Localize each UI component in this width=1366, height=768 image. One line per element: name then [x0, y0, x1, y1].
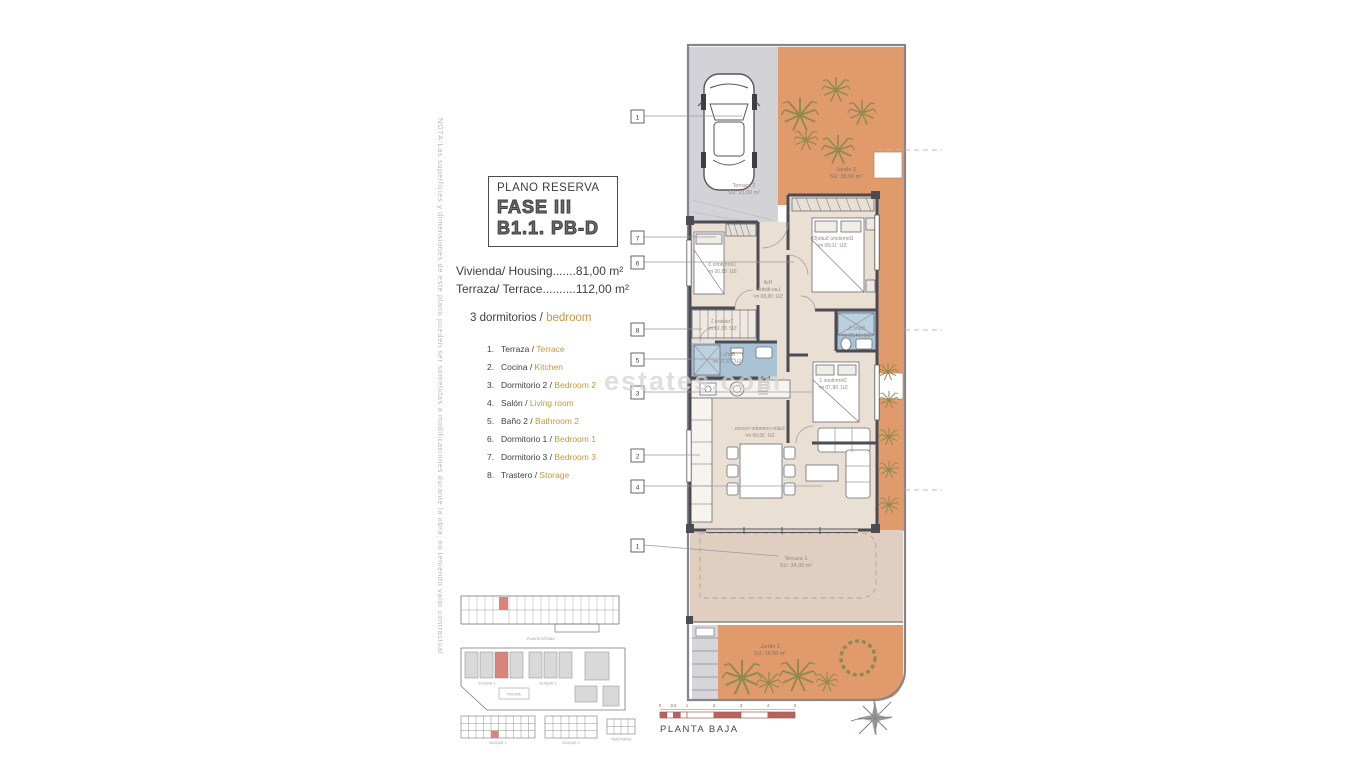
jardin2-area: SU: 36,00 m²: [830, 174, 863, 180]
plan-phase: FASE III: [497, 197, 609, 218]
legend-item-trastero: 8.Trastero / Storage: [487, 466, 596, 484]
legend-item-bano2: 5.Baño 2 / Bathroom 2: [487, 412, 596, 430]
legend-item-dormitorio1: 6.Dormitorio 1 / Bedroom 1: [487, 430, 596, 448]
marker-dormitorio1: 6: [636, 261, 640, 268]
watermark: estates.com: [604, 366, 819, 397]
pool-label: PISCINA: [507, 693, 521, 697]
dormitorio3-area: SU: 08,00 m²: [707, 269, 737, 275]
terraza1-label: Terraza 1: [785, 556, 808, 562]
jardin1-label: Jardín 1: [760, 644, 780, 650]
keyplan-site: BLOQUE 1 BLOQUE 2 PISCINA: [461, 648, 625, 710]
legend-item-dormitorio2: 3.Dormitorio 2 / Bedroom 2: [487, 376, 596, 394]
site-block1-label: BLOQUE 1: [479, 682, 496, 686]
legend-item-dormitorio3: 7.Dormitorio 3 / Bedroom 3: [487, 448, 596, 466]
salon-area: SU: 30,00 m²: [745, 433, 775, 439]
scale-tick-4: 4: [767, 703, 770, 708]
marker-terraza-top: 1: [636, 115, 640, 122]
plan-footer: 0 0.5 1 2 3 4 5 PLANTA BAJA: [650, 698, 910, 746]
trastero-label: Trastero 1: [710, 319, 733, 325]
legend-item-salon: 4.Salón / Living room: [487, 394, 596, 412]
dormitorio2-area: SU: 08,70 m²: [818, 385, 848, 391]
highlight-unit: [491, 731, 499, 738]
terrace-area: Terraza/ Terrace..........112,00 m²: [456, 280, 629, 298]
scale-tick-2: 2: [713, 703, 716, 708]
dormitorio3-label: Dormitorio 3: [708, 262, 735, 268]
title-block: PLANO RESERVA FASE III B1.1. PB-D: [488, 176, 618, 247]
site-key-plans: PLANTA SÓTANO BLOQUE 1 BLOQUE 2 PISCINA …: [455, 588, 645, 746]
elev-block1-label: BLOQUE 1: [490, 741, 507, 745]
plan-unit: B1.1. PB-D: [497, 218, 609, 239]
room-legend: 1.Terraza / Terrace 2.Cocina / Kitchen 3…: [487, 340, 596, 484]
jardin1-area: SU: 18,00 m²: [754, 651, 787, 657]
marker-terraza-bottom: 1: [636, 544, 640, 551]
basement-label: PLANTA SÓTANO: [527, 636, 555, 641]
area-summary: Vivienda/ Housing.......81,00 m² Terraza…: [456, 262, 629, 298]
dormitorio-suite-label: Dormitorio Suite(D): [810, 236, 853, 242]
bano2-area: SU: 03,70 m²: [712, 359, 742, 365]
marker-cocina: 2: [636, 454, 640, 461]
jardin2-label: Jardín 2: [836, 167, 856, 173]
highlight-unit: [499, 597, 508, 610]
site-block2-label: BLOQUE 2: [540, 682, 557, 686]
housing-area: Vivienda/ Housing.......81,00 m²: [456, 262, 629, 280]
marker-dormitorio3: 7: [636, 236, 640, 243]
storage-label: TRASTEROS: [611, 738, 632, 742]
keyplan-elevations: BLOQUE 1 BLOQUE 2 TRASTEROS: [461, 716, 635, 745]
marker-salon: 4: [636, 485, 640, 492]
legend-item-terraza: 1.Terraza / Terrace: [487, 340, 596, 358]
plan-note-vertical: NOTA:Las superficies y dimensiones de es…: [436, 118, 445, 643]
hall-label: Hall: [764, 280, 773, 286]
scale-tick-3: 3: [740, 703, 743, 708]
scale-tick-05: 0.5: [671, 703, 677, 708]
elev-block2-label: BLOQUE 2: [563, 741, 580, 745]
hall-label2: Lav-distrib.: [756, 287, 780, 293]
trastero-area: SU: 03,10 m²: [707, 326, 737, 332]
keyplan-basement: PLANTA SÓTANO: [461, 596, 619, 641]
hall-area: SU: 06,80 m²: [753, 294, 783, 300]
compass-icon: [851, 701, 892, 735]
terraza1-area: SU: 34,00 m²: [780, 563, 813, 569]
legend-item-cocina: 2.Cocina / Kitchen: [487, 358, 596, 376]
scale-tick-5: 5: [794, 703, 797, 708]
bedrooms-heading: 3 dormitorios / bedroom: [470, 312, 591, 324]
bedrooms-es: 3 dormitorios /: [470, 312, 546, 324]
plan-subtitle: PLANO RESERVA: [497, 182, 609, 194]
marker-trastero: 8: [636, 328, 640, 335]
bedrooms-en: bedroom: [546, 312, 591, 324]
car-icon: [698, 74, 760, 190]
salon-label: Salón-comedor-cocina: [735, 426, 785, 432]
marker-bano2: 5: [636, 358, 640, 365]
scale-tick-0: 0: [659, 703, 662, 708]
dormitorio-suite-area: SU: 10,80 m²: [817, 243, 847, 249]
terraza2-label: Terraza 2: [733, 183, 756, 189]
bano-suite-label: Baño S.: [847, 326, 865, 332]
bano-suite-area: SU: 04,20 m²: [841, 333, 871, 339]
bano2-label: Baño 2: [719, 352, 735, 358]
scale-bar: 0 0.5 1 2 3 4 5: [659, 703, 797, 718]
terraza2-area: SU: 23,00 m²: [728, 190, 761, 196]
dormitorio2-label: Dormitorio 2: [819, 378, 846, 384]
scale-tick-1: 1: [686, 703, 689, 708]
highlight-unit: [495, 652, 508, 678]
floor-caption: PLANTA BAJA: [660, 724, 739, 735]
